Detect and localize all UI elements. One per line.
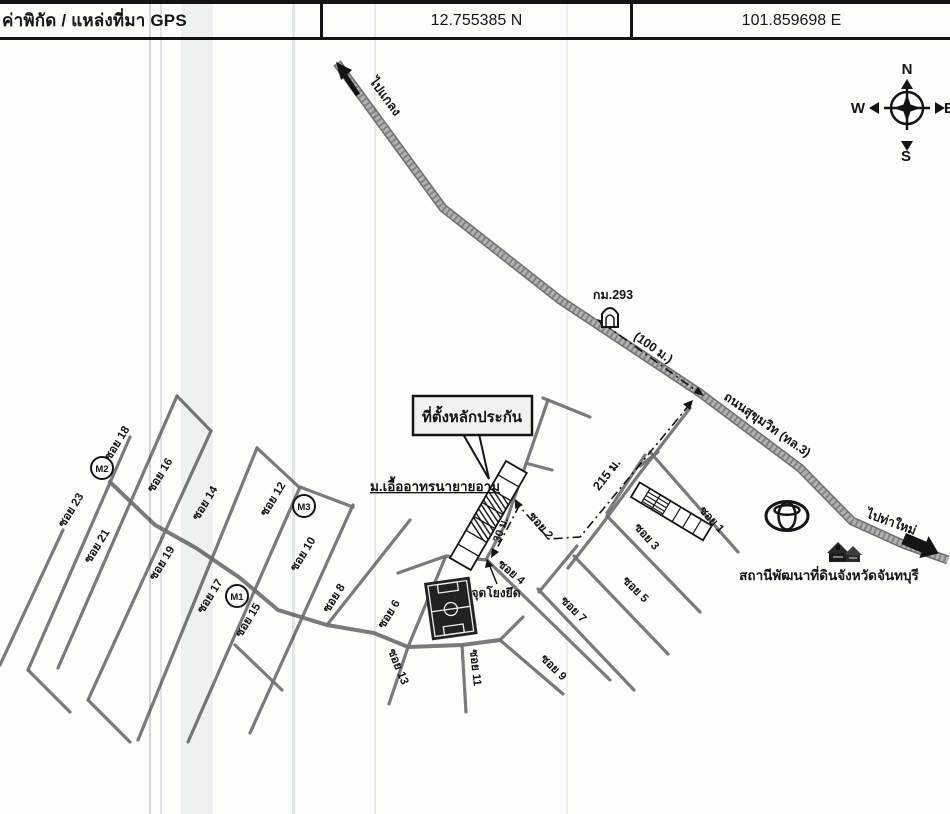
marker-m1: M1 [226, 585, 248, 607]
land-station-icon [827, 542, 862, 562]
soi-label: ซอย 11 [467, 649, 483, 687]
direction-arrow-north-icon [336, 62, 358, 95]
compass-rose-icon: N W S E [851, 61, 950, 165]
soi-label: ซอย 2 [526, 510, 555, 541]
toyota-logo-icon [766, 502, 808, 531]
compass-e-label: E [944, 100, 950, 117]
location-map: ที่ตั้งหลักประกัน M2 [0, 40, 950, 814]
estate-name-label: ม.เอื้ออาทรนายายอาม [370, 476, 500, 494]
soi-label: ซอย 16 [145, 456, 175, 494]
latitude-value: 12.755385 N [320, 4, 630, 37]
soi-label: ซอย 12 [258, 480, 288, 518]
compass-n-label: N [902, 61, 913, 78]
land-station-label: สถานีพัฒนาที่ดินจังหวัดจันทบุรี [739, 565, 919, 584]
soi-label: ซอย 17 [195, 577, 225, 615]
km-marker-label: กม.293 [593, 288, 633, 302]
soi-label: ซอย 7 [558, 595, 588, 625]
svg-text:M2: M2 [95, 464, 108, 475]
anchor-point-label: จุดโยงยึด [472, 585, 521, 601]
gps-header-table: ค่าพิกัด / แหล่งที่มา GPS 12.755385 N 10… [0, 0, 950, 40]
svg-text:M1: M1 [230, 592, 244, 603]
longitude-value: 101.859698 E [630, 4, 950, 37]
soi-label: ซอย 14 [190, 484, 220, 523]
soi-label: ซอย 5 [620, 575, 651, 606]
svg-text:M3: M3 [297, 502, 310, 513]
soi-label: ซอย 8 [321, 582, 348, 615]
dist-215m-label: 215 ม. [590, 456, 623, 493]
compass-s-label: S [901, 148, 911, 165]
soccer-field-icon [424, 577, 478, 641]
gps-source-label: ค่าพิกัด / แหล่งที่มา GPS [0, 4, 320, 37]
soi-label: ซอย 9 [538, 653, 568, 683]
callout-text: ที่ตั้งหลักประกัน [422, 405, 523, 426]
km-milestone-icon [602, 308, 618, 327]
highway-name-label: ถนนสุขุมวิท (ทล.3) [721, 390, 814, 461]
soi-label: ซอย 23 [56, 491, 86, 529]
scanned-map-document: ค่าพิกัด / แหล่งที่มา GPS 12.755385 N 10… [0, 0, 950, 814]
marker-m3: M3 [293, 495, 315, 517]
soi-label: ซอย 10 [288, 535, 318, 573]
soi-label: ซอย 6 [376, 598, 403, 631]
soi-labels: ซอย 18 ซอย 16 ซอย 23 ซอย 14 ซอย 12 ซอย 2… [56, 424, 726, 687]
compass-w-label: W [851, 100, 866, 117]
